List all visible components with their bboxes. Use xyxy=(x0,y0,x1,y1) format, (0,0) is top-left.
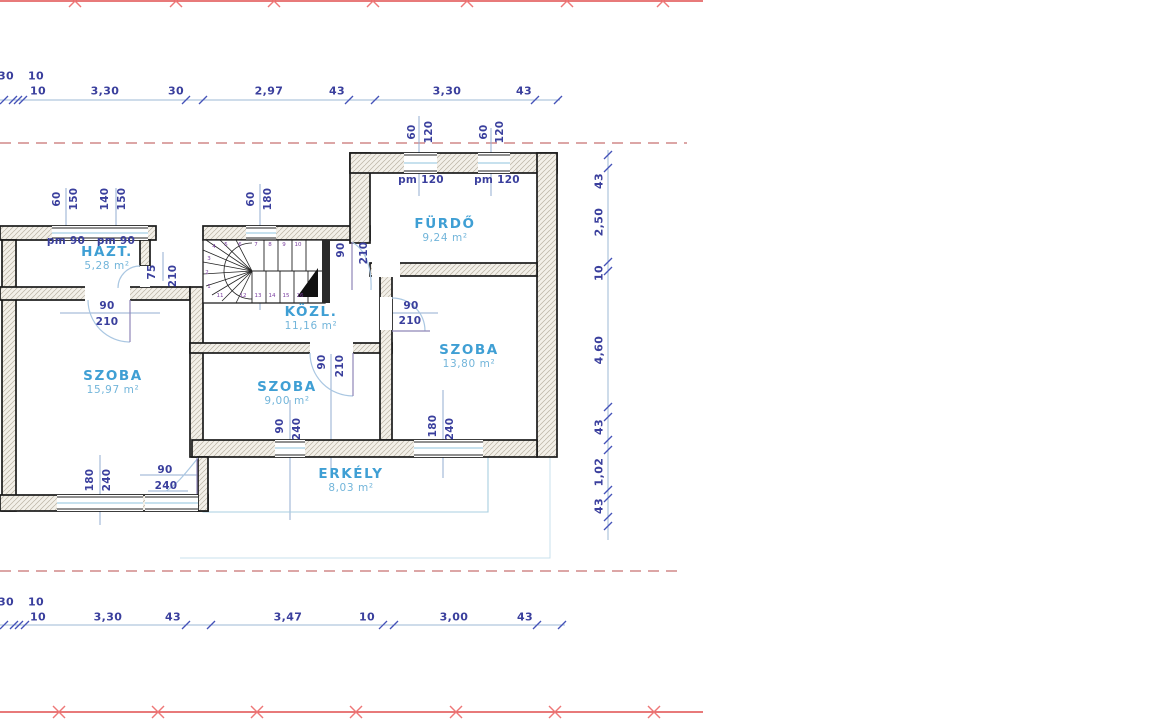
staircase xyxy=(203,240,330,303)
floor-plan-drawing xyxy=(0,0,1152,720)
walls xyxy=(0,153,557,511)
floorplan-page: { "plan": { "rooms": [ {"name":"HÁZT.","… xyxy=(0,0,1152,720)
section-x-marks xyxy=(53,0,669,718)
dimension-lines xyxy=(0,100,608,625)
balcony-outline xyxy=(180,457,550,558)
dimension-ticks xyxy=(0,96,612,629)
extension-lines xyxy=(60,116,491,525)
